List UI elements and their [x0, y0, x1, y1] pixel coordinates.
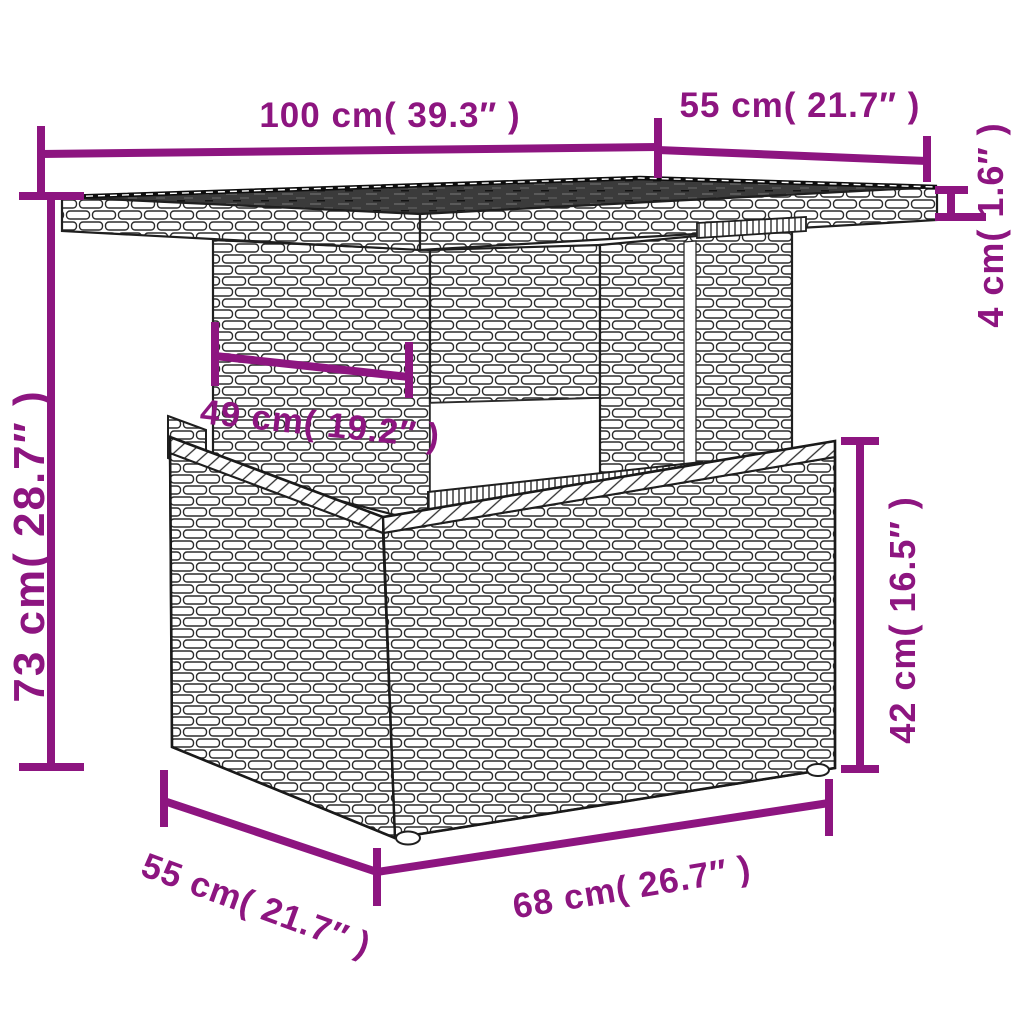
dimension-line-top-depth — [658, 118, 927, 182]
dimension-label-total-height: 73 cm( 28.7″ ) — [6, 389, 54, 702]
dimension-label-top-width: 100 cm( 39.3″ ) — [259, 97, 520, 136]
dimension-label-base-height: 42 cm( 16.5″ ) — [883, 496, 923, 743]
dimension-label-top-thickness: 4 cm( 1.6″ ) — [971, 122, 1011, 327]
dimension-line-base-height — [841, 441, 879, 769]
dimension-label-top-depth: 55 cm( 21.7″ ) — [680, 87, 921, 126]
dimension-diagram: 100 cm( 39.3″ ) 55 cm( 21.7″ ) 4 cm( 1.6… — [0, 0, 1024, 1024]
tabletop — [62, 178, 937, 250]
